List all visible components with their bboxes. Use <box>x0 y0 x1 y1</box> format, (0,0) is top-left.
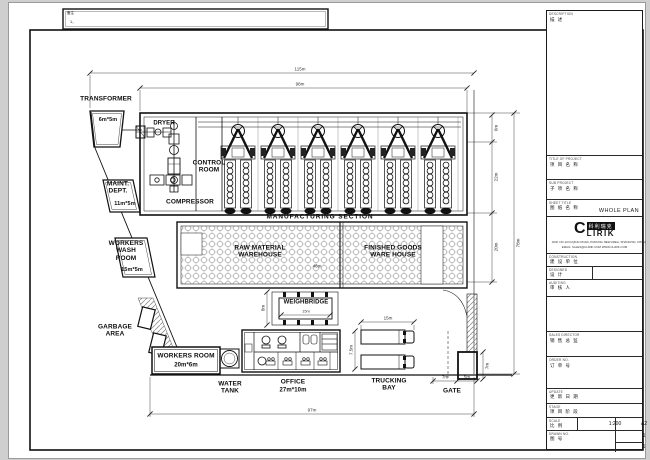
label-maint-size: 11m*5m <box>114 201 135 207</box>
truck <box>361 330 414 344</box>
tb-sheet-cell: 1 <box>615 431 644 442</box>
dim-trucking-7-5m: 7.5m <box>349 345 354 355</box>
tb-project-label: TITLE OF PROJECT <box>549 157 582 161</box>
tb-sheet-title-value: 图 纸 名 称 <box>550 205 579 211</box>
compressor-units <box>150 175 192 185</box>
label-office-size: 27m*10m <box>279 388 306 395</box>
dim-guard-5m: 5m <box>464 375 470 380</box>
dim-guard-7m: 7m <box>485 363 490 369</box>
dim-98m: 98m <box>296 82 305 87</box>
label-workers-size: 20m*6m <box>174 363 198 370</box>
label-wash-size: 15m*5m <box>121 267 143 273</box>
dim-weighbridge-8m: 8m <box>261 305 266 311</box>
tb-sheet-title: SHEET TITLE 图 纸 名 称 WHOLE PLAN <box>547 199 642 216</box>
cad-whole-plan-sheet: 备注 1、 TRANSFORMER 6m*5m DRYER CONTROL RO… <box>0 0 650 460</box>
tb-order-no: ORDER NO. 订 单 号 <box>547 356 642 388</box>
notes-line-1: 备注 <box>67 11 74 16</box>
label-workers-room: WORKERS ROOM <box>157 352 214 359</box>
tb-update-value: 更 新 日 期 <box>550 394 579 400</box>
dim-20m: 20m <box>494 243 499 252</box>
tb-paper-size: A2 <box>630 421 650 427</box>
tb-auditing: AUDITING 审 核 人 <box>547 279 642 296</box>
tb-sub-project-label: SUB PROJECT <box>549 181 574 185</box>
tb-stage: STAGE 项 目 阶 段 <box>547 403 642 417</box>
tb-drawn-no: DRAWN NO. 图 号 1 1 <box>547 430 642 451</box>
tb-construction: CONSTRUCTION 建 设 单 位 <box>547 253 642 266</box>
dim-97m: 97m <box>308 408 317 413</box>
logo-address-line1: ADD: NO.19 FUQING ROAD, PUDONG NEW AREA,… <box>552 240 638 244</box>
tb-scale-value: 比 例 <box>550 423 563 429</box>
logo-lirik: LIRIK <box>587 230 615 238</box>
tb-order-no-label: ORDER NO. <box>549 358 569 362</box>
clirik-logo: C 科利瑞克 LIRIK <box>547 220 642 238</box>
tb-update: UPDATE 更 新 日 期 <box>547 388 642 403</box>
label-compressor: COMPRESSOR <box>166 198 214 205</box>
label-gate: GATE <box>443 387 461 394</box>
tb-sub-project-value: 子 项 名 称 <box>550 186 579 192</box>
dim-22m: 22m <box>494 173 499 182</box>
truck <box>361 355 414 369</box>
label-weighbridge: WEIGHBRIDGE <box>284 300 329 307</box>
label-manufacturing-section: MANUFACTURING SECTION <box>266 213 373 220</box>
label-water-tank: WATER TANK <box>218 381 242 396</box>
tb-empty <box>547 296 642 331</box>
tb-scale: SCALE 比 例 1:200 A2 <box>547 417 642 430</box>
tb-designed-value: 设 计 <box>550 272 563 278</box>
tb-stage-value: 项 目 阶 段 <box>550 409 579 415</box>
tb-description-value: 描 述 <box>550 17 563 23</box>
label-trucking-bay: TRUCKING BAY <box>371 378 406 393</box>
dim-115m: 115m <box>295 67 306 72</box>
water-tank <box>220 349 239 368</box>
tb-auditing-value: 审 核 人 <box>550 285 571 291</box>
label-office: OFFICE <box>281 378 305 385</box>
tb-sheet-name: WHOLE PLAN <box>599 208 639 214</box>
logo-c: C <box>574 222 586 236</box>
label-control-room: CONTROL ROOM <box>193 160 226 175</box>
dim-46m: 46m <box>313 264 322 269</box>
warehouse <box>177 222 467 288</box>
tb-sales-director-label: SALES DIRECTOR <box>549 333 580 337</box>
tb-logo-row: C 科利瑞克 LIRIK ADD: NO.19 FUQING ROAD, PUD… <box>547 216 642 253</box>
trucking-bay <box>361 330 414 369</box>
tb-description-label: DESCRIPTION <box>549 12 573 16</box>
label-garbage: GARBAGE AREA <box>98 324 132 339</box>
notes-line-2: 1、 <box>70 19 76 25</box>
tb-of-number: 1 <box>630 444 650 450</box>
tb-sub-project: SUB PROJECT 子 项 名 称 <box>547 179 642 199</box>
tb-scale-ratio-cell: 1:200 <box>577 418 615 430</box>
label-finished-warehouse: FINISHED GOODS WARE HOUSE <box>364 245 422 260</box>
tb-drawn-no-value: 图 号 <box>550 436 563 442</box>
label-dryer: DRYER <box>153 121 174 128</box>
workers-room <box>152 347 220 374</box>
dim-trucking-15m: 15m <box>384 316 393 321</box>
office-building <box>242 330 340 372</box>
label-transformer: TRANSFORMER <box>80 95 132 102</box>
tb-designed-cell <box>592 267 644 279</box>
dim-gate-7m: 7m <box>442 375 448 380</box>
gate-area <box>443 290 477 379</box>
label-transformer-size: 6m*5m <box>99 117 118 123</box>
tb-order-no-value: 订 单 号 <box>550 363 571 369</box>
label-maint-dept: MAINT. DEPT. <box>107 181 129 196</box>
dryer-equipment <box>136 120 180 192</box>
tb-construction-value: 建 设 单 位 <box>550 259 579 265</box>
tb-sales-director: SALES DIRECTOR 销 售 总 监 <box>547 331 642 356</box>
tb-designed: DESIGNED 设 计 <box>547 266 642 279</box>
label-raw-warehouse: RAW MATERIAL WAREHOUSE <box>234 245 285 260</box>
tb-sales-director-value: 销 售 总 监 <box>550 338 579 344</box>
tb-sheet-number: 1 <box>630 433 650 439</box>
label-wash-room: WORKERS WASH ROOM <box>109 240 144 262</box>
tb-of-cell: 1 <box>615 442 644 453</box>
tb-description: DESCRIPTION 描 述 <box>547 11 642 155</box>
title-block: DESCRIPTION 描 述 TITLE OF PROJECT 项 目 名 称… <box>546 10 643 450</box>
tb-project-value: 项 目 名 称 <box>550 162 579 168</box>
dim-weighbridge-15m: 15m <box>302 309 310 314</box>
logo-address-line2: EMAIL: SALES@CLIRIK.COM WWW.CLIRIK.COM <box>552 245 638 249</box>
tb-paper-size-cell: A2 <box>615 418 644 430</box>
dim-6m: 6m <box>494 125 499 131</box>
tb-project: TITLE OF PROJECT 项 目 名 称 <box>547 155 642 179</box>
dim-78m: 78m <box>516 239 521 248</box>
